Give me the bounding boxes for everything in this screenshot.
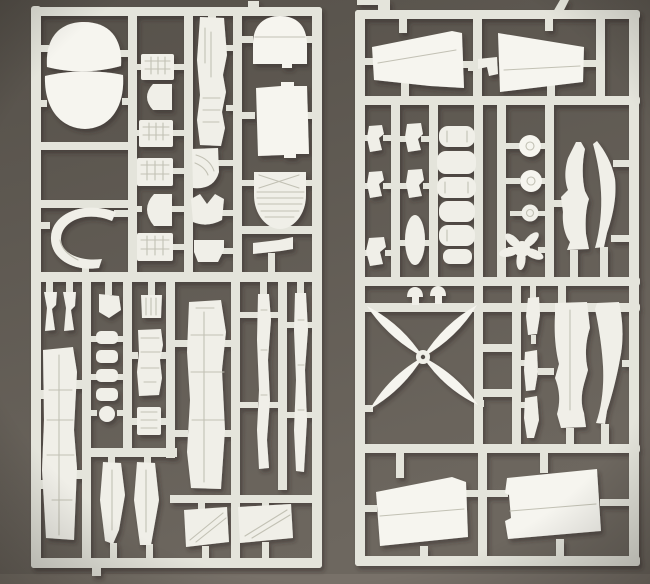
- sprue-photo: [0, 0, 650, 584]
- sprue-photo-canvas: [0, 0, 650, 584]
- vignette: [0, 0, 650, 584]
